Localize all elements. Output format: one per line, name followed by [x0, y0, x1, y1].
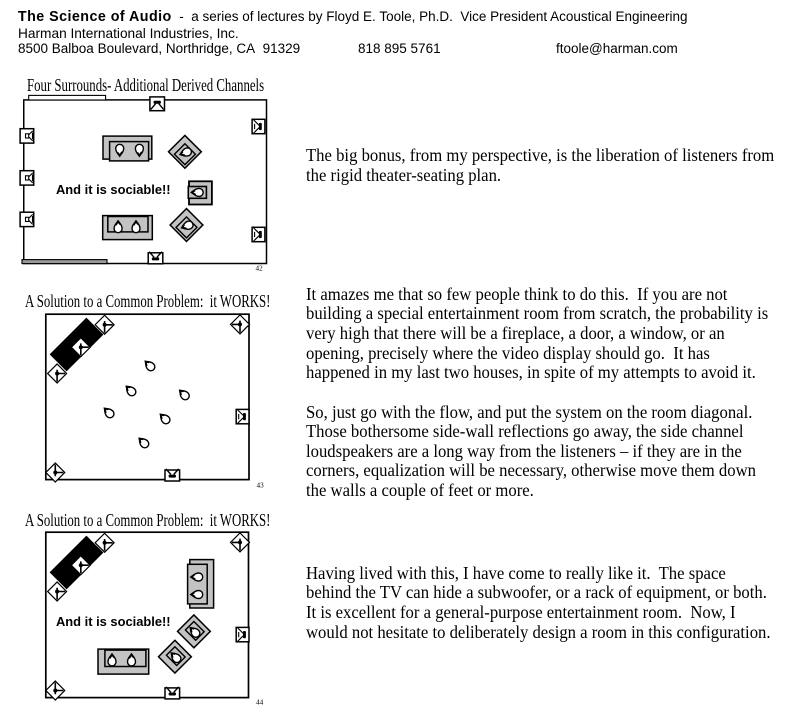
svg-text:42: 42 [256, 265, 264, 273]
svg-text:44: 44 [256, 699, 264, 707]
svg-text:43: 43 [257, 482, 265, 490]
